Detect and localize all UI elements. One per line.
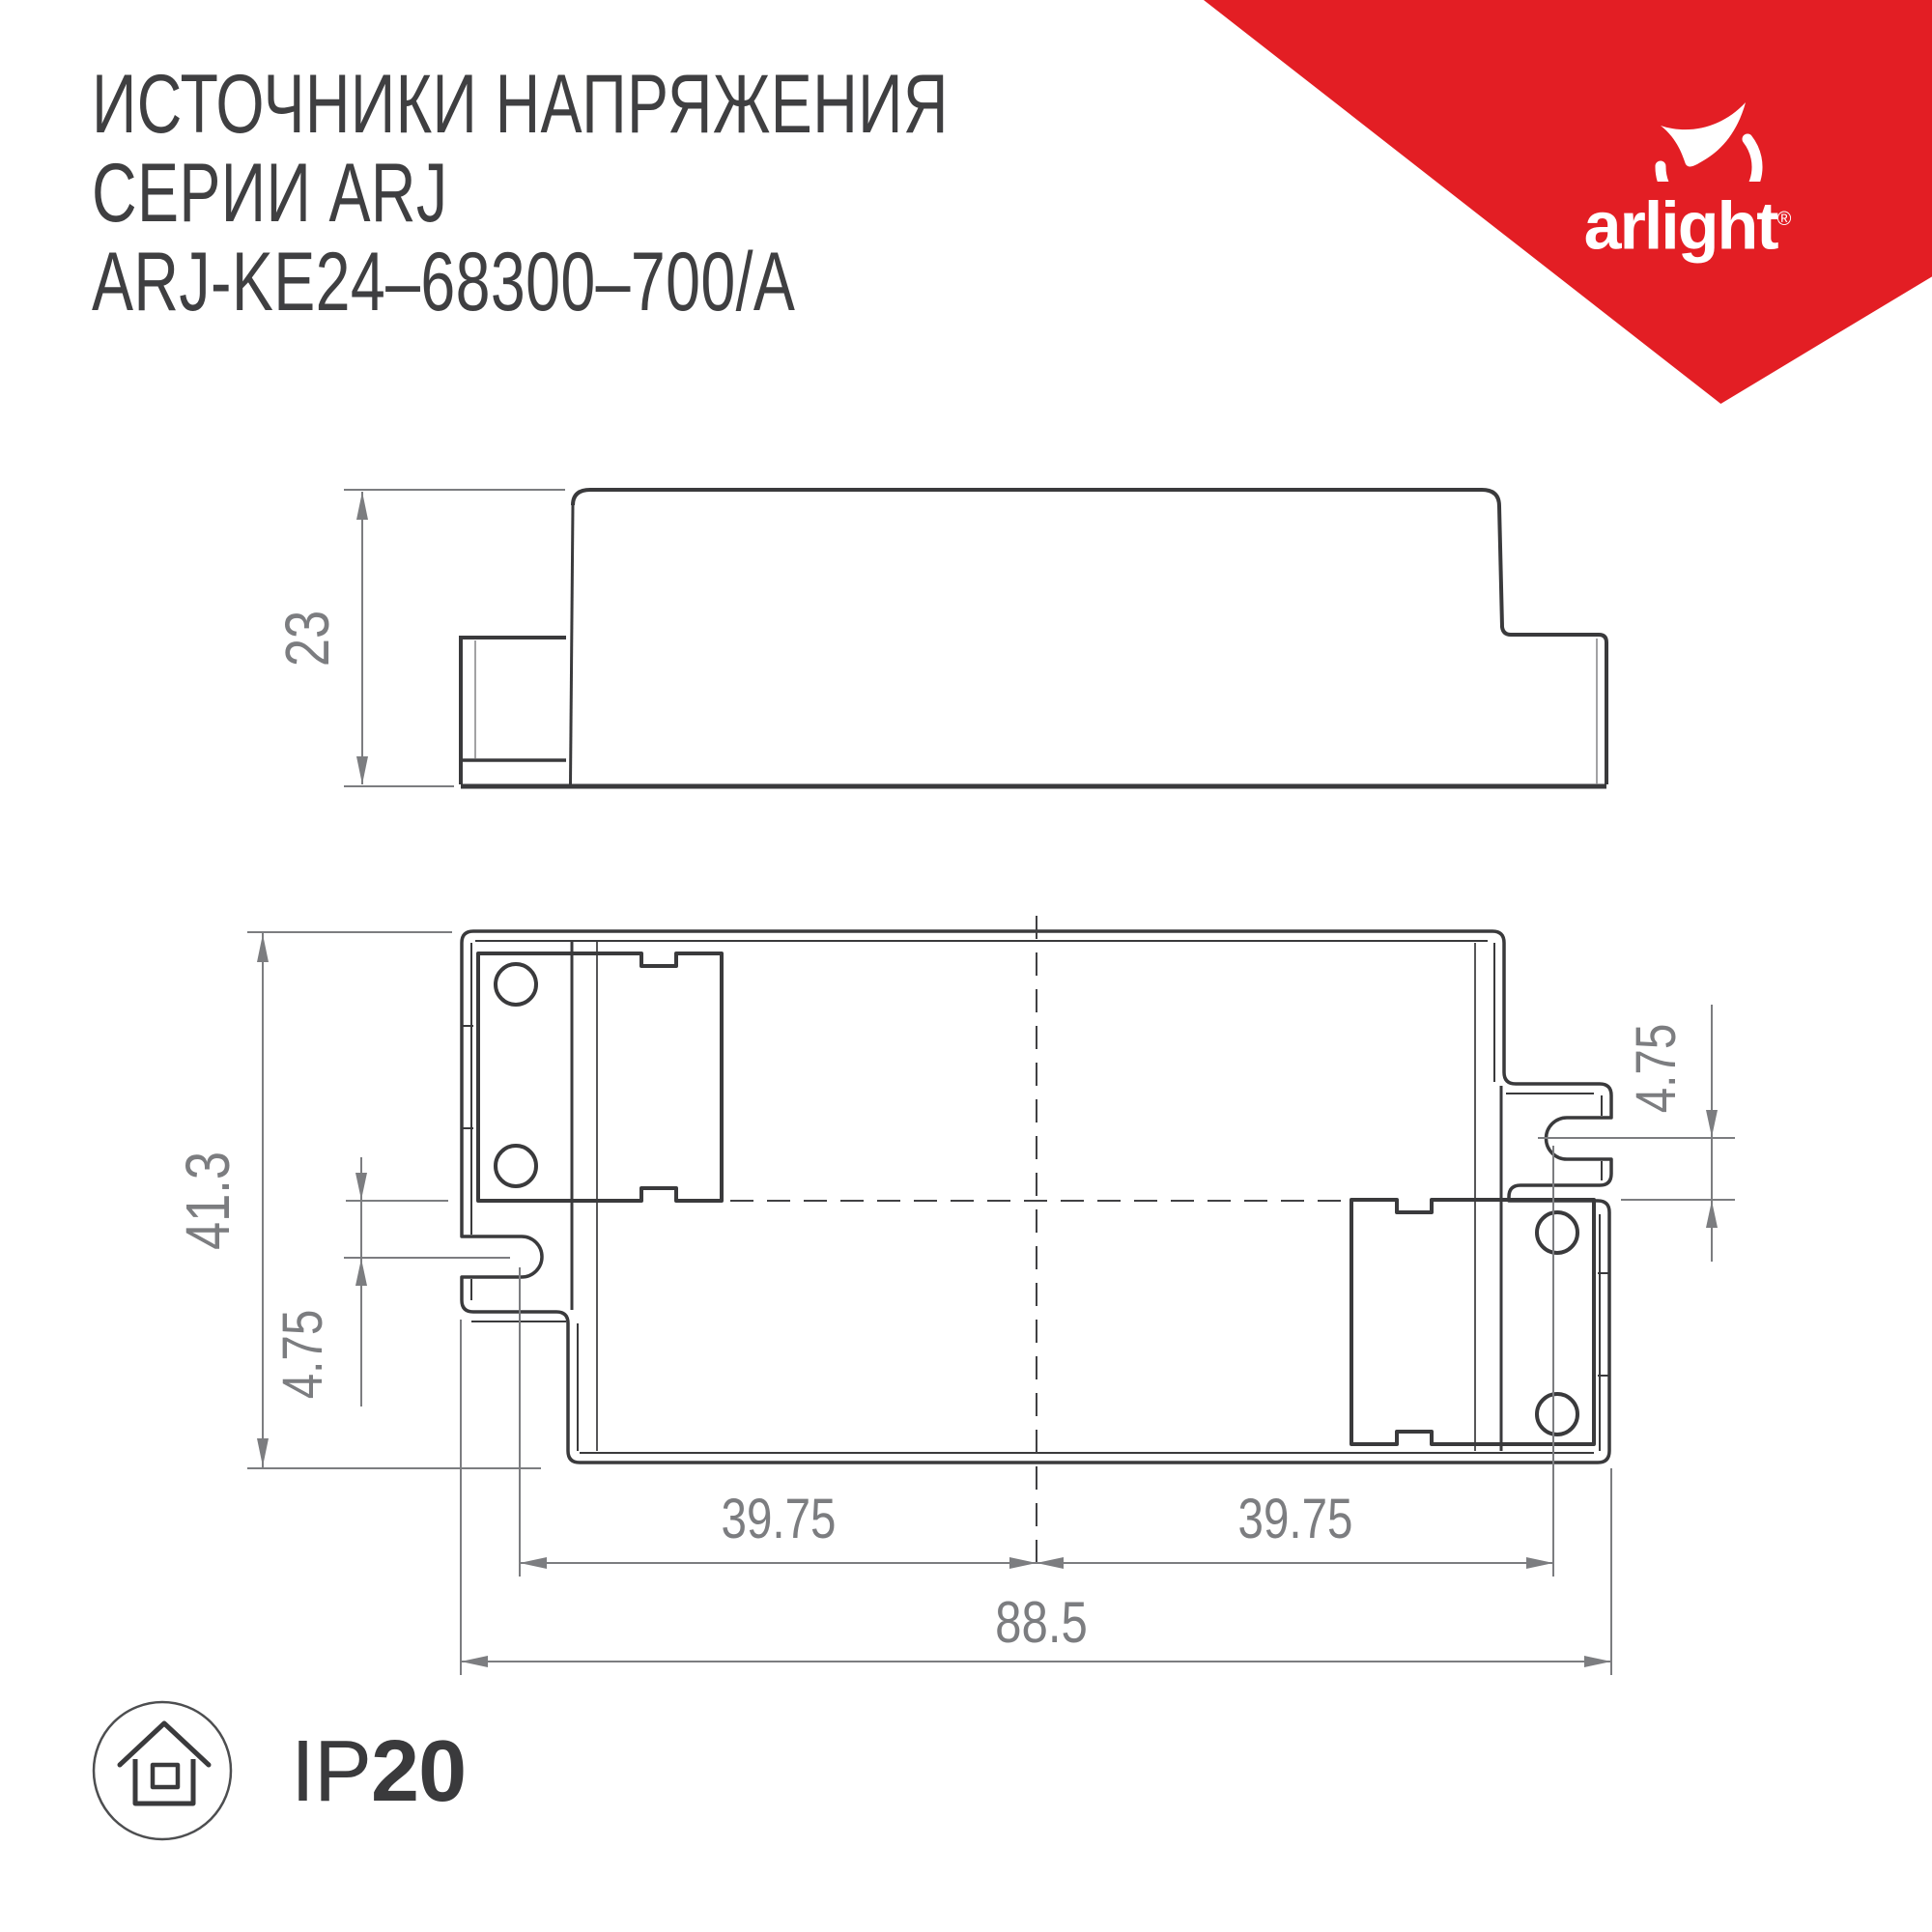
screw-hole	[496, 964, 536, 1005]
dim-overall-width: 88.5	[995, 1589, 1088, 1655]
dim-overall-height: 41.3	[174, 1151, 242, 1250]
ip-prefix: IP	[291, 1723, 371, 1820]
dim-side-height: 23	[273, 611, 342, 667]
indoor-use-icon	[94, 1702, 231, 1839]
terminal-block-right	[1351, 1200, 1594, 1444]
top-view: 41.3 4.75 4.75 39.75 39.75 88.5	[174, 916, 1735, 1675]
datasheet-page: { "header": { "line1": "ИСТОЧНИКИ НАПРЯЖ…	[0, 0, 1932, 1932]
ip-rating: IP20	[291, 1728, 466, 1815]
technical-drawing: 23	[0, 0, 1932, 1932]
ip-value: 20	[371, 1723, 466, 1820]
dim-slot-offset-left: 4.75	[272, 1310, 335, 1400]
screw-hole	[496, 1146, 536, 1186]
side-view: 23	[273, 490, 1606, 786]
dim-slot-offset-right: 4.75	[1626, 1024, 1689, 1114]
dim-slot-spacing-right: 39.75	[1238, 1489, 1353, 1551]
dim-slot-spacing-left: 39.75	[722, 1489, 837, 1551]
terminal-block-left	[478, 953, 722, 1201]
screw-hole	[1537, 1212, 1577, 1253]
screw-hole	[1537, 1394, 1577, 1435]
